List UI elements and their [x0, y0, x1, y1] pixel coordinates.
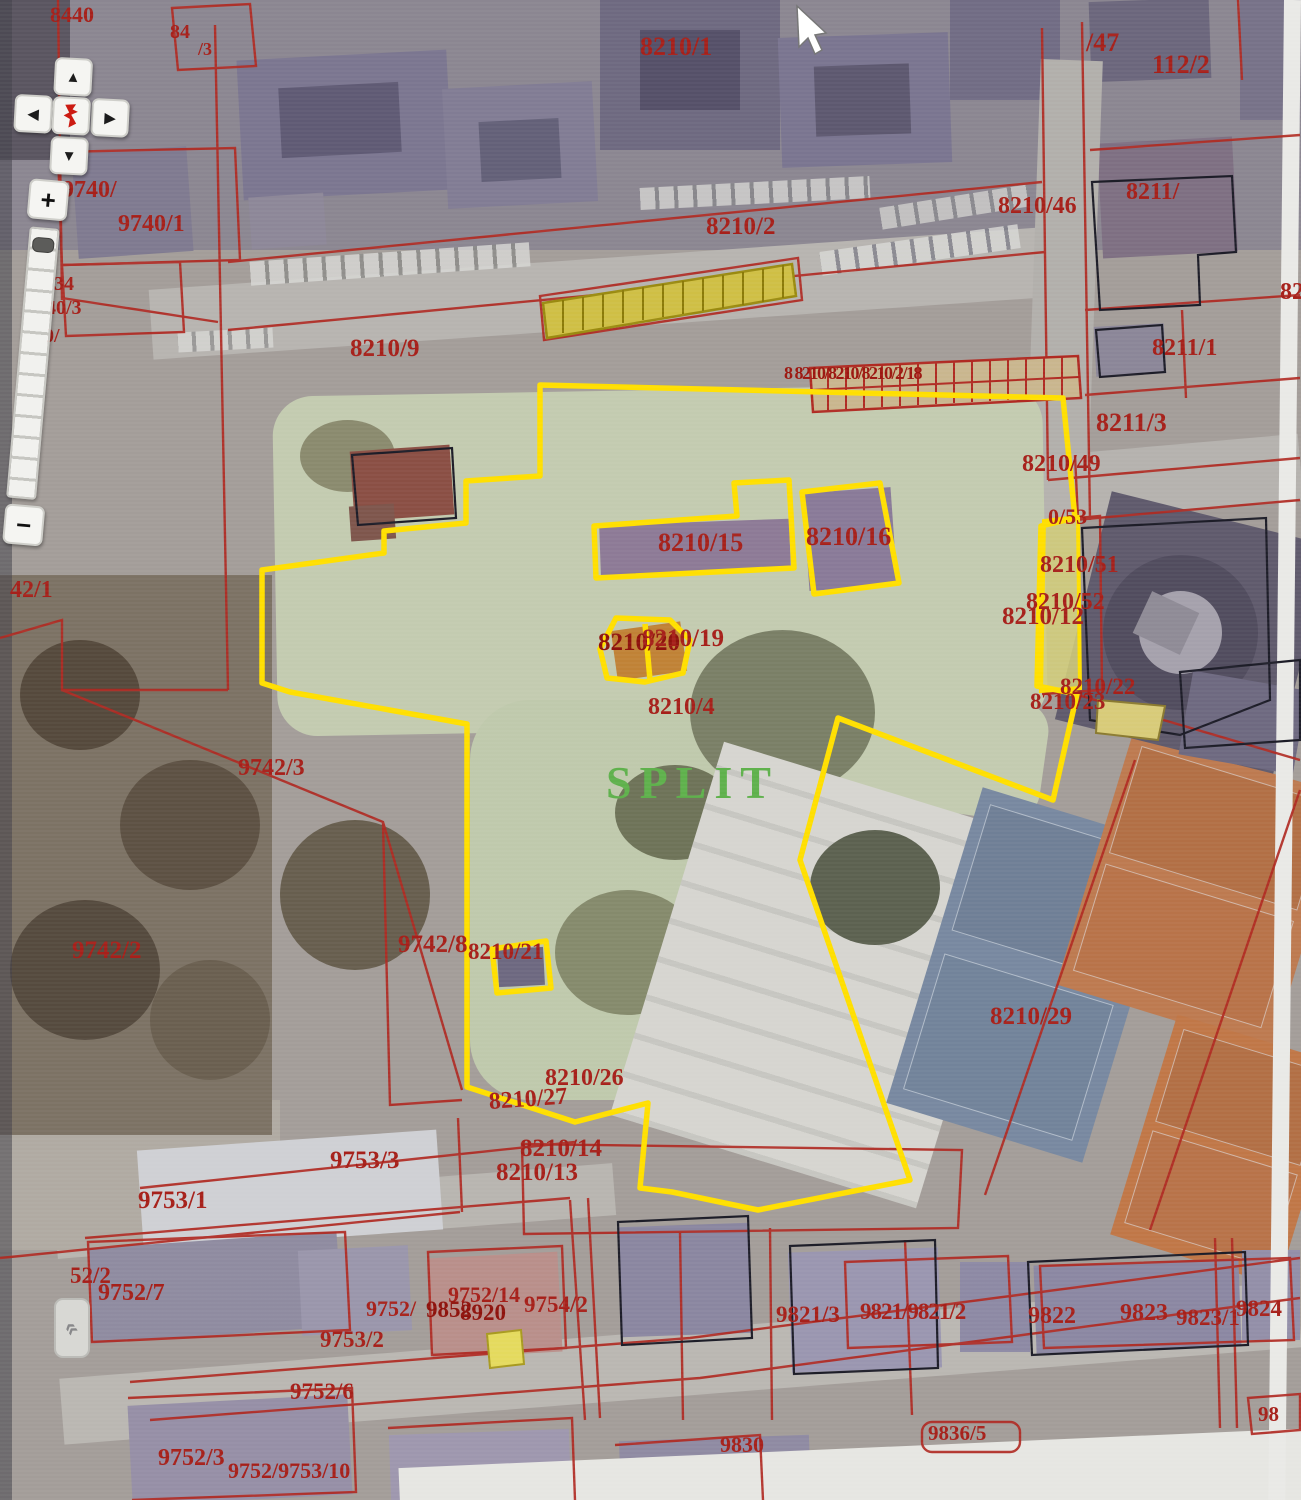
pan-center-logo	[51, 96, 91, 136]
cadastral-overlay	[0, 0, 1301, 1500]
side-strip-parcel	[1041, 517, 1080, 691]
small-parcel-yellow	[487, 1330, 524, 1368]
hatched-parking-red	[810, 356, 1081, 412]
panel-toggle-button[interactable]: «	[54, 1298, 90, 1358]
pan-control: ▲ ◀ ▶ ▼	[0, 0, 155, 204]
croatia-logo-icon	[58, 101, 83, 130]
pan-right-button[interactable]: ▶	[90, 98, 130, 138]
gis-viewer-window: 844084/38210/1/47112/29740/9740/13440/30…	[0, 0, 1301, 1500]
collapse-chevrons-icon: «	[58, 1316, 86, 1341]
hatched-parking-yellow	[543, 264, 796, 338]
pan-up-button[interactable]: ▲	[53, 57, 93, 97]
zoom-out-button[interactable]: −	[2, 503, 45, 546]
zoom-slider-handle[interactable]	[32, 237, 55, 254]
parcel-lines	[0, 0, 1300, 1500]
small-parcel-tan	[1096, 700, 1165, 740]
pan-down-button[interactable]: ▼	[49, 136, 89, 176]
highlighted-parcel-outline	[262, 385, 1077, 1210]
pan-left-button[interactable]: ◀	[13, 94, 53, 134]
zoom-in-button[interactable]: +	[27, 178, 70, 221]
